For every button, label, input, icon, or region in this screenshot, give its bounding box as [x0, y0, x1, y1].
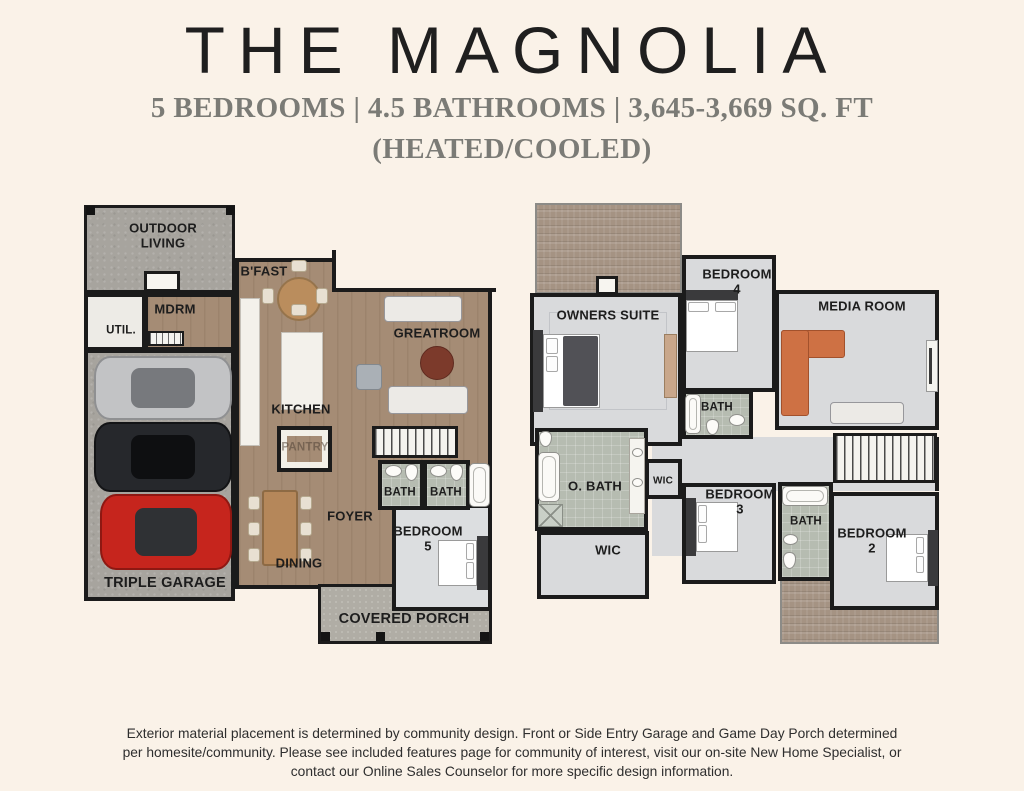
chair-icon	[300, 496, 312, 510]
exterior-notch	[332, 250, 496, 292]
sofa-icon	[830, 402, 904, 424]
car-icon	[94, 356, 232, 420]
bed-headboard-icon	[477, 536, 488, 590]
sink-icon	[430, 465, 447, 477]
chair-icon	[300, 522, 312, 536]
coffee-table-icon	[420, 346, 454, 380]
disclaimer-text: Exterior material placement is determine…	[122, 724, 902, 781]
blanket-icon	[563, 336, 598, 406]
chair-icon	[291, 260, 307, 272]
room-label-pantry: PANTRY	[281, 442, 328, 455]
sink-icon	[632, 448, 643, 457]
room-label-wic-small: WIC	[653, 475, 673, 486]
room-label-bedroom-2: BEDROOM 2	[833, 526, 911, 555]
sink-icon	[729, 414, 745, 426]
porch-post	[480, 632, 489, 641]
stairs-icon	[833, 433, 937, 483]
pillow-icon	[466, 543, 474, 560]
sofa-icon	[388, 386, 468, 414]
room-label-mdrm: MDRM	[154, 303, 195, 318]
bed-headboard-icon	[686, 498, 696, 556]
chair-icon	[291, 304, 307, 316]
porch-post	[226, 206, 235, 215]
porch-post	[321, 632, 330, 641]
room-util	[84, 293, 146, 351]
room-label-greatroom: GREATROOM	[394, 327, 481, 342]
chair-icon	[248, 522, 260, 536]
room-label-bedroom-4: BEDROOM 4	[698, 267, 776, 296]
floorplan-flyer: THE MAGNOLIA 5 BEDROOMS | 4.5 BATHROOMS …	[0, 0, 1024, 791]
car-icon	[94, 422, 232, 492]
room-label-bfast: B'FAST	[241, 265, 288, 280]
room-label-media-room: MEDIA ROOM	[818, 300, 905, 315]
car-icon	[100, 494, 232, 570]
room-label-owners-bath: O. BATH	[568, 480, 622, 495]
porch-post	[376, 632, 385, 641]
room-label-dining: DINING	[276, 557, 323, 572]
pillow-icon	[698, 525, 707, 543]
room-label-bath-a: BATH	[384, 487, 416, 500]
room-label-triple-garage: TRIPLE GARAGE	[104, 575, 226, 591]
room-wic-large	[537, 531, 649, 599]
chair-icon	[262, 288, 274, 304]
room-label-wic-large: WIC	[595, 544, 621, 559]
room-label-bath-b: BATH	[430, 487, 462, 500]
room-label-outdoor-living: OUTDOOR LIVING	[117, 221, 209, 250]
bathtub-icon	[538, 452, 560, 502]
sectional-sofa-icon	[781, 330, 809, 416]
pillow-icon	[546, 338, 558, 354]
dining-table-icon	[262, 490, 298, 566]
pillow-icon	[715, 302, 736, 312]
stairs-icon	[372, 426, 458, 458]
outdoor-step-icon	[144, 271, 180, 292]
pillow-icon	[916, 537, 924, 554]
pillow-icon	[466, 562, 474, 579]
room-label-covered-porch: COVERED PORCH	[339, 611, 470, 627]
room-label-bedroom-5: BEDROOM 5	[392, 524, 464, 553]
pillow-icon	[916, 556, 924, 573]
dresser-icon	[664, 334, 677, 398]
pillow-icon	[688, 302, 709, 312]
chair-icon	[316, 288, 328, 304]
room-label-owners-suite: OWNERS SUITE	[557, 309, 660, 324]
garage-steps-icon	[148, 331, 184, 346]
armchair-icon	[356, 364, 382, 390]
sink-icon	[783, 534, 798, 545]
room-label-foyer: FOYER	[327, 510, 373, 525]
porch-post	[86, 206, 95, 215]
bathtub-icon	[782, 486, 828, 506]
sink-icon	[385, 465, 402, 477]
room-label-bath-hall: BATH	[701, 402, 733, 415]
bed-headboard-icon	[533, 330, 543, 412]
sink-icon	[632, 478, 643, 487]
tv-icon	[929, 348, 932, 384]
room-label-bedroom-3: BEDROOM 3	[701, 487, 779, 516]
pillow-icon	[546, 356, 558, 372]
bed-headboard-icon	[928, 530, 938, 586]
chair-icon	[248, 548, 260, 562]
bathtub-icon	[469, 463, 490, 507]
chimney-icon	[596, 276, 618, 295]
room-label-util: UTIL.	[106, 325, 136, 338]
chair-icon	[248, 496, 260, 510]
kitchen-counter-icon	[240, 298, 260, 446]
kitchen-island-icon	[281, 332, 323, 410]
room-label-kitchen: KITCHEN	[271, 403, 330, 418]
bathtub-icon	[685, 394, 701, 434]
sofa-icon	[384, 296, 462, 322]
shower-icon	[538, 504, 563, 527]
tv-console-icon	[926, 340, 938, 392]
room-label-bath-2: BATH	[790, 516, 822, 529]
